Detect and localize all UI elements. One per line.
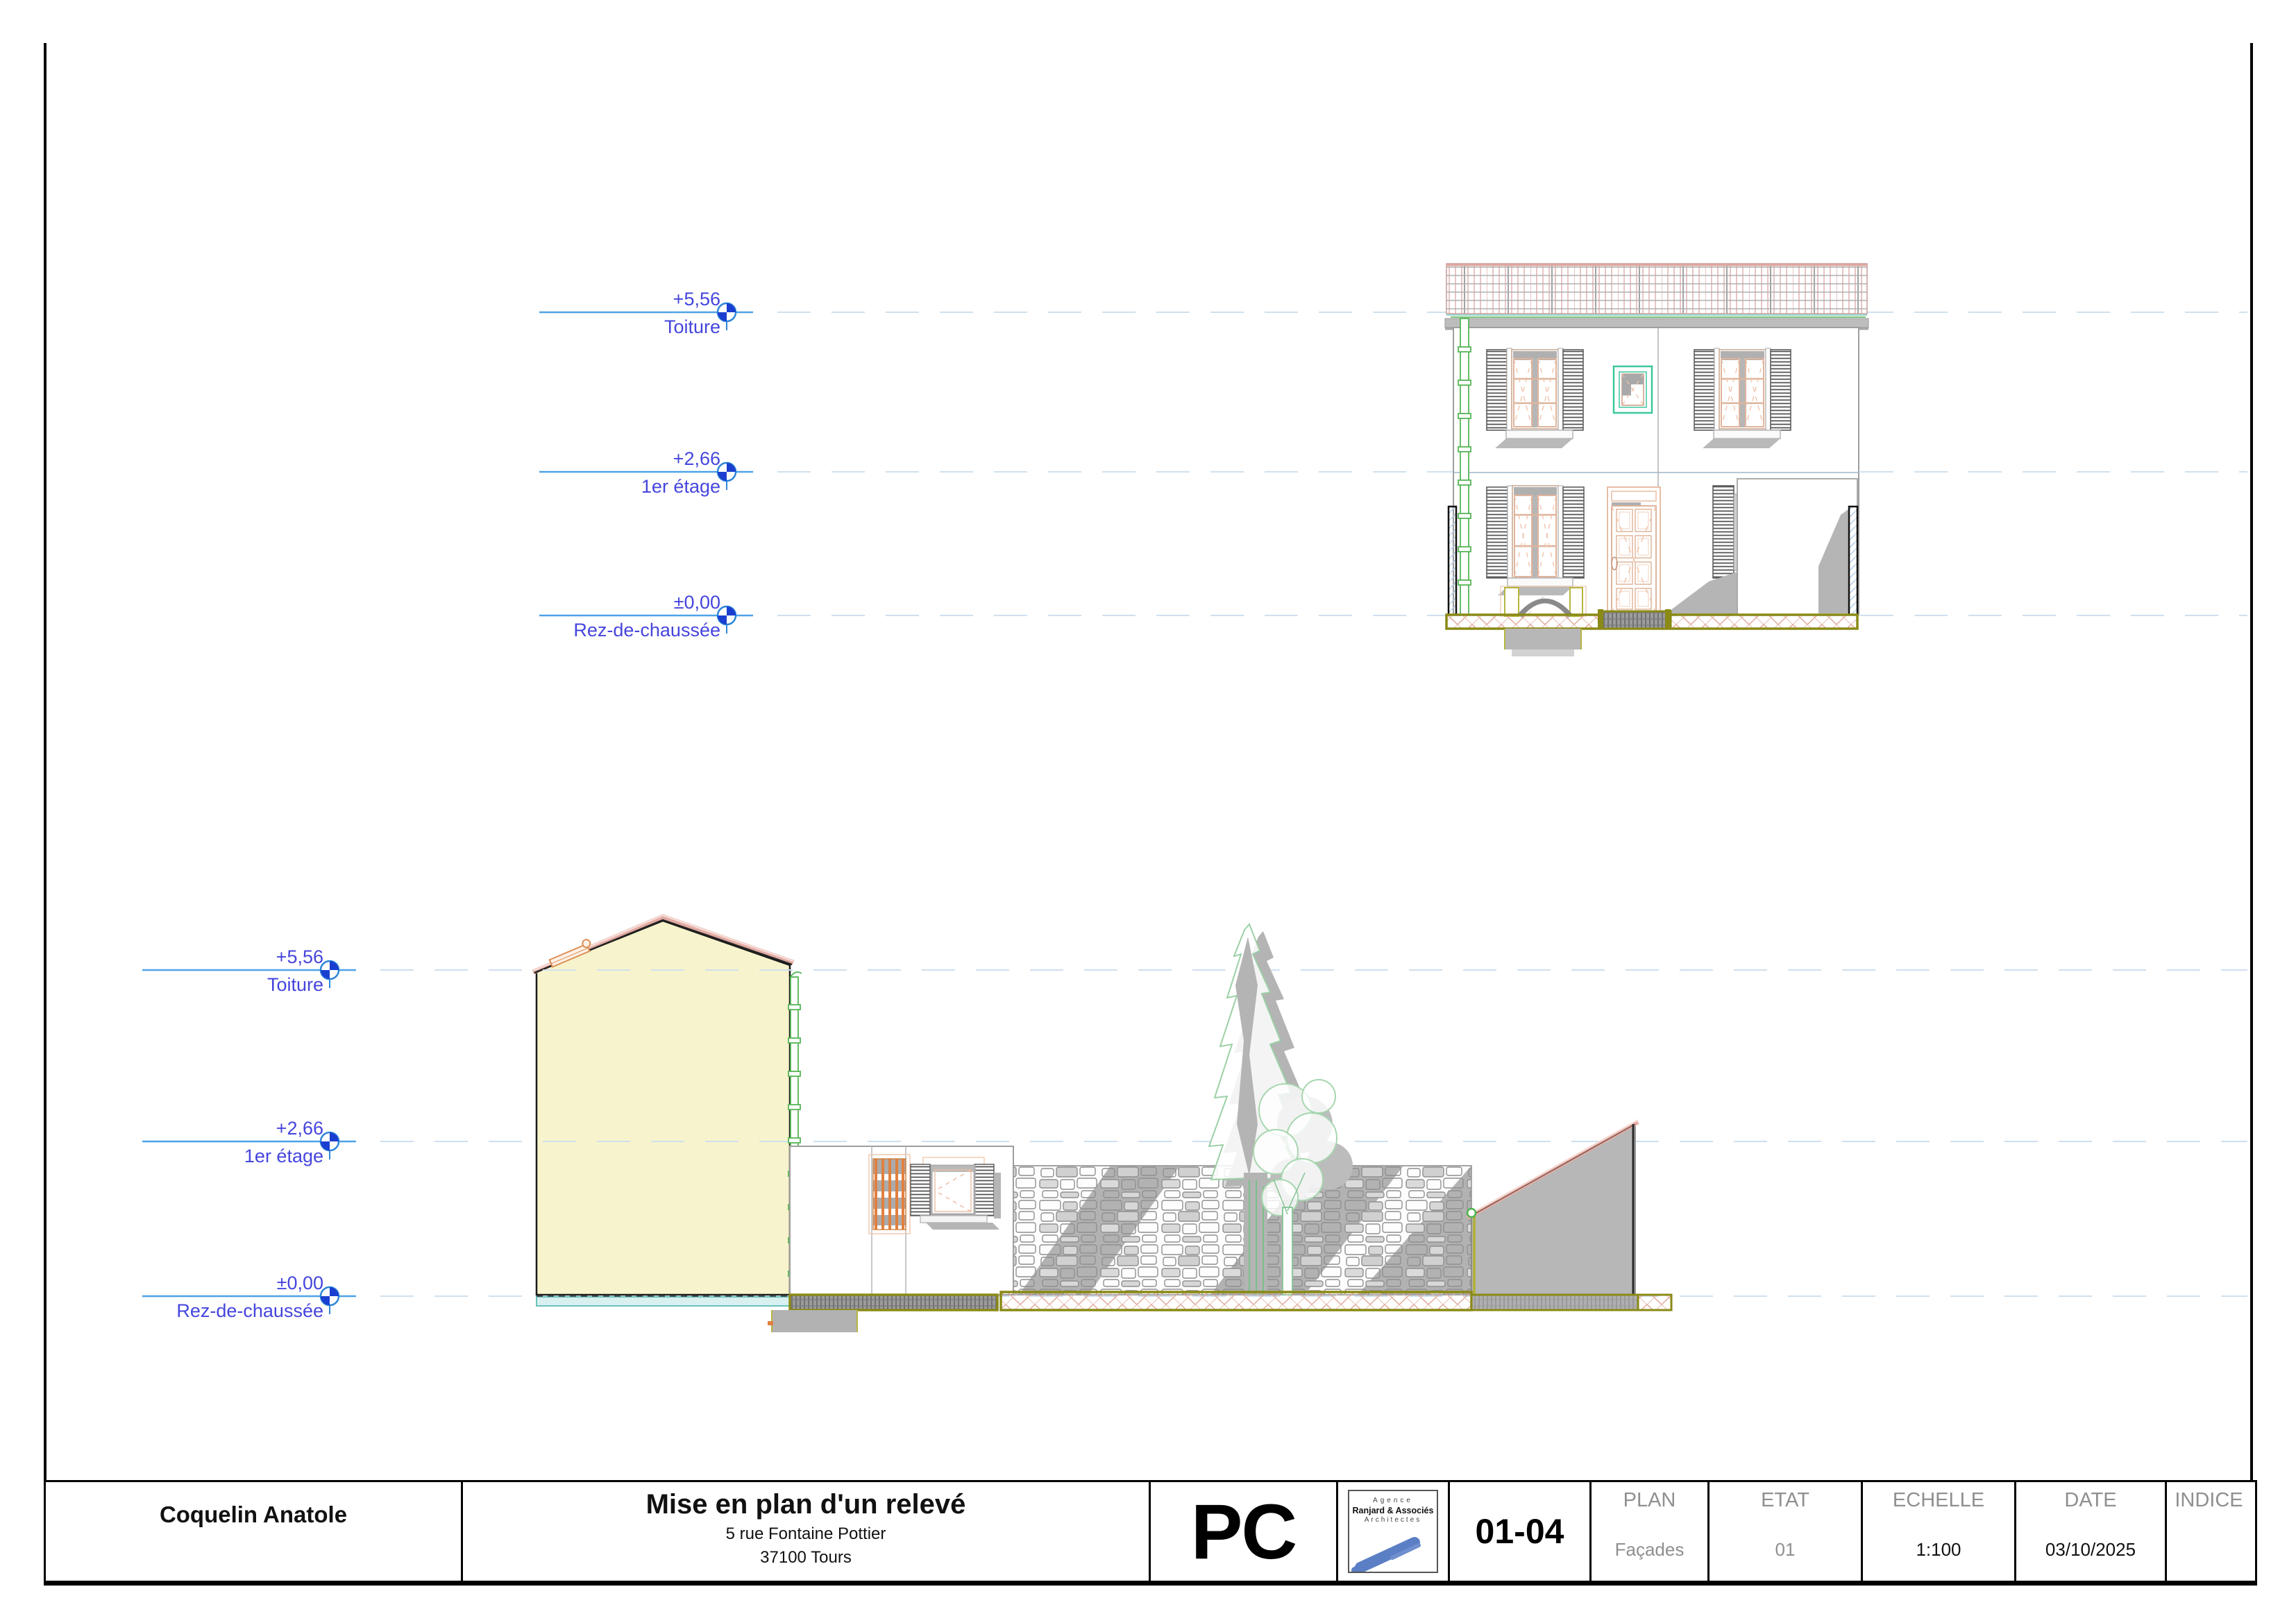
shuttered-window-side xyxy=(911,1157,1001,1230)
svg-text:+2,66: +2,66 xyxy=(673,448,720,469)
level-rdc-front: ±0,00 Rez-de-chaussée xyxy=(539,592,753,640)
etat-cell: ETAT 01 xyxy=(1710,1482,1863,1581)
middle-wall xyxy=(790,1146,1013,1295)
permit-code: PC xyxy=(1191,1487,1297,1577)
foundation-block-side xyxy=(772,1310,857,1332)
plan-cell: PLAN Façades xyxy=(1592,1482,1710,1581)
title-block-client-cell: Coquelin Anatole xyxy=(46,1482,463,1581)
logo-line1: Agence xyxy=(1349,1497,1437,1504)
svg-text:1er étage: 1er étage xyxy=(641,476,720,497)
foundation-block xyxy=(1505,629,1581,649)
level-1er-etage-side: +2,66 1er étage xyxy=(142,1118,356,1166)
cut-wall-right xyxy=(1849,507,1857,615)
echelle-value: 1:100 xyxy=(1863,1539,2014,1561)
terrain-band xyxy=(1001,1292,1471,1310)
svg-text:+2,66: +2,66 xyxy=(276,1118,323,1139)
ground-band-front xyxy=(1446,609,1857,656)
date-cell: DATE 03/10/2025 xyxy=(2016,1482,2167,1581)
svg-text:Toiture: Toiture xyxy=(267,974,323,995)
level-markers-front: +5,56 Toiture +2,66 1er étage ±0,00 Rez-… xyxy=(539,289,753,640)
project-address-line2: 37100 Tours xyxy=(463,1548,1149,1567)
logo-line3: Architectes xyxy=(1349,1516,1437,1524)
roof-tiles xyxy=(1446,264,1867,314)
plan-value: Façades xyxy=(1592,1539,1707,1561)
architect-logo-cell: Agence Ranjard & Associés Architectes xyxy=(1338,1482,1450,1581)
svg-text:Rez-de-chaussée: Rez-de-chaussée xyxy=(176,1300,323,1321)
svg-text:1er étage: 1er étage xyxy=(244,1146,323,1166)
logo-line2: Ranjard & Associés xyxy=(1349,1506,1437,1515)
side-elevation-gable-wall xyxy=(533,915,793,1295)
sheet-number-cell: 01-04 xyxy=(1450,1482,1592,1581)
gutter-end xyxy=(1467,1209,1476,1217)
indice-cell: INDICE xyxy=(2167,1482,2251,1581)
indice-label: INDICE xyxy=(2167,1489,2251,1512)
level-markers-side: +5,56 Toiture +2,66 1er étage ±0,00 Rez-… xyxy=(142,946,356,1321)
level-value: +5,56 xyxy=(673,289,720,309)
level-1er-etage-front: +2,66 1er étage xyxy=(539,448,753,497)
downpipe-front xyxy=(1458,318,1471,615)
front-elevation xyxy=(1445,264,1868,656)
architect-logo: Agence Ranjard & Associés Architectes xyxy=(1348,1490,1438,1573)
svg-text:±0,00: ±0,00 xyxy=(674,592,720,613)
echelle-label: ECHELLE xyxy=(1863,1489,2014,1512)
door-grate xyxy=(1600,611,1671,629)
date-label: DATE xyxy=(2016,1489,2165,1512)
level-rdc-side: ±0,00 Rez-de-chaussée xyxy=(142,1273,356,1321)
window-teal-small xyxy=(1614,366,1652,413)
drawing-sheet: +5,56 Toiture +2,66 1er étage ±0,00 Rez-… xyxy=(0,0,2296,1623)
etat-value: 01 xyxy=(1710,1539,1861,1561)
etat-label: ETAT xyxy=(1710,1489,1861,1512)
elevation-drawing: +5,56 Toiture +2,66 1er étage ±0,00 Rez-… xyxy=(0,0,2296,1623)
svg-text:±0,00: ±0,00 xyxy=(277,1273,323,1293)
barred-window xyxy=(869,1155,910,1234)
level-label: Toiture xyxy=(664,316,720,337)
courtyard-building xyxy=(1467,1120,1638,1295)
client-name: Coquelin Anatole xyxy=(46,1502,461,1528)
grate-band xyxy=(790,1295,997,1310)
project-title: Mise en plan d'un relevé xyxy=(463,1489,1149,1520)
cut-wall-left xyxy=(1449,507,1456,615)
title-block: Coquelin Anatole Mise en plan d'un relev… xyxy=(44,1480,2257,1586)
pavement-band xyxy=(1471,1295,1638,1310)
foundation-strip xyxy=(537,1297,790,1306)
ground-band-side xyxy=(768,1292,1671,1332)
plan-label: PLAN xyxy=(1592,1489,1707,1512)
sheet-number: 01-04 xyxy=(1476,1511,1564,1552)
echelle-cell: ECHELLE 1:100 xyxy=(1863,1482,2016,1581)
front-door xyxy=(1607,487,1660,615)
title-block-project-cell: Mise en plan d'un relevé 5 rue Fontaine … xyxy=(463,1482,1151,1581)
permit-code-cell: PC xyxy=(1151,1482,1338,1581)
svg-text:Rez-de-chaussée: Rez-de-chaussée xyxy=(573,620,720,640)
logo-brush-icon xyxy=(1351,1531,1434,1572)
cornice xyxy=(1445,318,1868,328)
project-address-line1: 5 rue Fontaine Pottier xyxy=(463,1524,1149,1544)
level-toiture-front: +5,56 Toiture xyxy=(539,289,753,337)
svg-text:+5,56: +5,56 xyxy=(276,946,323,967)
level-toiture-side: +5,56 Toiture xyxy=(142,946,356,995)
date-value: 03/10/2025 xyxy=(2016,1539,2165,1561)
